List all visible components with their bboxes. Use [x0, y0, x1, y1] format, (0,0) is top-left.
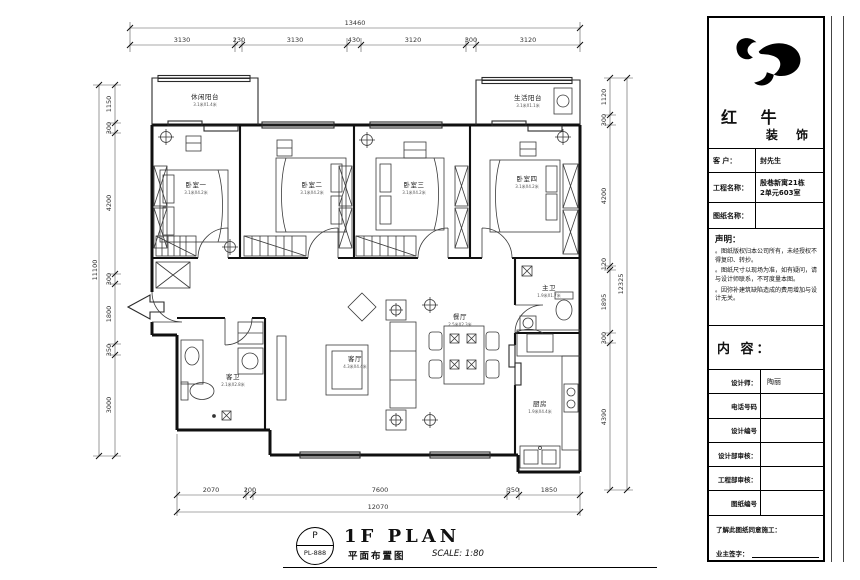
room-label-leisure-balcony: 休闲阳台	[191, 92, 219, 101]
engineering-review-row: 工程部审核：	[709, 467, 823, 491]
dimension-chain-right: 12325 1120 300 4200 120 1895 300 4390	[600, 75, 633, 493]
sheet-number-value	[761, 491, 823, 514]
title-block: 红 牛 装 饰 客 户： 封先生 工程名称： 殷巷新寓21栋 2单元603室 图…	[707, 16, 825, 562]
plan-title: 1F PLAN	[344, 526, 460, 547]
design-review-row: 设计部审核：	[709, 443, 823, 467]
company-name-top: 红 牛	[721, 104, 786, 128]
sheet-number-label: 图纸编号	[709, 491, 761, 514]
dim-left-seg: 300	[105, 122, 113, 134]
dim-top-seg: 430	[348, 36, 360, 44]
project-value-line1: 殷巷新寓21栋	[760, 178, 823, 188]
phone-row: 电话号码	[709, 394, 823, 418]
drawing-name-label: 图纸名称：	[709, 203, 756, 228]
room-label-bedroom2: 卧室二	[302, 180, 323, 189]
room-size-kitchen: 1.9米X4.4米	[528, 408, 551, 414]
phone-value	[761, 394, 823, 417]
room-label-master-bath: 主卫	[542, 283, 556, 292]
window-symbols	[158, 76, 572, 459]
statement-section: 声明： 。图纸版权归本公司所有，未经授权不得复印、转抄。 。图纸尺寸以现场为准，…	[709, 229, 823, 326]
statement-note: 。图纸版权归本公司所有，未经授权不得复印、转抄。	[715, 248, 820, 265]
company-name-bottom: 装 饰	[766, 126, 815, 143]
stamp-code: PL-888	[297, 545, 333, 561]
room-size-bedroom1: 3.1米X4.2米	[184, 189, 207, 195]
dim-right-seg: 4200	[600, 188, 608, 205]
dim-right-seg: 1120	[600, 89, 608, 106]
engineering-review-label: 工程部审核：	[709, 467, 761, 490]
dim-right-seg: 300	[600, 114, 608, 126]
dim-top-seg: 3120	[405, 36, 422, 44]
designer-row: 设计师： 陶丽	[709, 370, 823, 394]
dim-right-seg: 4390	[600, 409, 608, 426]
entry-arrow-icon	[128, 295, 164, 319]
living-room-furniture	[277, 293, 416, 430]
life-balcony-washer	[554, 88, 572, 114]
dim-bottom-seg: 350	[507, 486, 519, 494]
plan-subtitle: 平面布置图	[348, 548, 406, 562]
dim-left-seg: 350	[105, 344, 113, 356]
design-number-row: 设计编号	[709, 419, 823, 443]
engineering-review-value	[761, 467, 823, 490]
signature-section: 了解此图纸同意施工： 业主签字：	[709, 516, 823, 558]
master-bath-fixtures	[520, 266, 573, 330]
vent-symbols	[158, 129, 571, 428]
dim-left-seg: 1150	[105, 96, 113, 113]
design-number-value	[761, 419, 823, 442]
dim-left-seg: 300	[105, 273, 113, 285]
dim-bottom-seg: 7600	[372, 486, 389, 494]
bull-logo-icon	[731, 30, 805, 96]
room-label-guest-bath: 客卫	[226, 372, 240, 381]
room-label-life-balcony: 生活阳台	[514, 93, 542, 102]
room-label-dining: 餐厅	[453, 312, 467, 321]
client-label: 客 户：	[709, 149, 756, 172]
dim-bottom-seg: 200	[244, 486, 256, 494]
company-logo-section: 红 牛 装 饰	[709, 18, 823, 149]
acknowledge-label: 了解此图纸同意施工：	[716, 524, 819, 534]
dim-left-total: 11100	[91, 260, 99, 281]
room-label-kitchen: 厨房	[533, 399, 547, 408]
statement-note: 。图纸尺寸以现场为准，如有疑问，请与设计师联系，不可度量本图。	[715, 267, 820, 284]
dim-left-seg: 1800	[105, 306, 113, 323]
designer-label: 设计师：	[709, 370, 761, 393]
dim-bottom-seg: 2070	[203, 486, 220, 494]
bedroom1-furniture	[154, 136, 228, 256]
room-size-living: 4.3米X4.4米	[343, 363, 366, 369]
room-size-bedroom2: 3.1米X4.2米	[300, 189, 323, 195]
plan-scale: SCALE: 1:80	[432, 549, 484, 559]
stamp-letter: P	[297, 528, 333, 545]
dim-top-seg: 3130	[287, 36, 304, 44]
room-label-bedroom3: 卧室三	[404, 180, 425, 189]
room-label-bedroom1: 卧室一	[186, 180, 207, 189]
room-size-bedroom3: 3.1米X4.2米	[402, 189, 425, 195]
room-size-dining: 2.5米X2.3米	[448, 321, 471, 327]
content-label: 内 容：	[709, 326, 823, 370]
design-review-value	[761, 443, 823, 466]
statement-note: 。因弥补建筑缺陷造成的费用增加与设计无关。	[715, 287, 820, 304]
phone-label: 电话号码	[709, 394, 761, 417]
design-review-label: 设计部审核：	[709, 443, 761, 466]
dim-right-seg: 300	[600, 332, 608, 344]
guest-bath-fixtures	[181, 322, 263, 420]
footer-rule	[283, 567, 657, 568]
bedroom3-furniture	[356, 142, 468, 256]
dim-left-seg: 4200	[105, 195, 113, 212]
sheet-margin-strip	[831, 16, 844, 562]
dim-left-seg: 3000	[105, 397, 113, 414]
dim-bottom-total: 12070	[368, 503, 389, 511]
design-number-label: 设计编号	[709, 419, 761, 442]
dimension-chain-left: 11100 1150 300 4200 300 1800 350 3000	[91, 82, 121, 459]
plan-stamp: P PL-888	[296, 527, 334, 565]
owner-sign-label: 业主签字：	[716, 548, 749, 558]
project-row: 工程名称： 殷巷新寓21栋 2单元603室	[709, 173, 823, 203]
bedroom2-furniture	[244, 140, 352, 256]
drawing-sheet: 13460 3130 230 3130 430 3120 300 3120 11…	[0, 0, 860, 580]
statement-title: 声明：	[715, 233, 820, 245]
room-label-bedroom4: 卧室四	[517, 174, 538, 183]
project-label: 工程名称：	[709, 173, 756, 202]
designer-value: 陶丽	[761, 370, 823, 393]
floor-plan-drawing: 13460 3130 230 3130 430 3120 300 3120 11…	[0, 0, 700, 580]
hall-cabinet	[156, 262, 190, 288]
stamp-divider	[297, 545, 333, 546]
sheet-number-row: 图纸编号	[709, 491, 823, 515]
room-size-life-balcony: 3.1米X1.1米	[516, 102, 539, 108]
drawing-name-row: 图纸名称：	[709, 203, 823, 229]
owner-signature-line	[752, 549, 820, 558]
dim-right-total: 12325	[617, 274, 625, 295]
dimension-chain-top: 13460 3130 230 3130 430 3120 300 3120	[127, 19, 583, 52]
room-size-guest-bath: 2.1米X2.8米	[221, 381, 244, 387]
dim-top-seg: 3120	[520, 36, 537, 44]
dim-top-seg: 300	[465, 36, 477, 44]
dining-furniture	[429, 326, 499, 384]
room-size-master-bath: 1.9米X1.7米	[537, 292, 560, 298]
dim-right-seg: 120	[600, 258, 608, 270]
dim-top-seg: 3130	[174, 36, 191, 44]
room-label-living: 客厅	[348, 354, 362, 363]
dim-top-total: 13460	[345, 19, 366, 27]
client-row: 客 户： 封先生	[709, 149, 823, 173]
client-value: 封先生	[760, 156, 823, 166]
room-size-bedroom4: 3.1米X4.2米	[515, 183, 538, 189]
dim-bottom-seg: 1850	[541, 486, 558, 494]
dim-right-seg: 1895	[600, 294, 608, 311]
project-value-line2: 2单元603室	[760, 188, 823, 198]
room-size-leisure-balcony: 3.1米X1.4米	[193, 101, 216, 107]
kitchen-fixtures	[517, 330, 580, 468]
dim-top-seg: 230	[233, 36, 245, 44]
